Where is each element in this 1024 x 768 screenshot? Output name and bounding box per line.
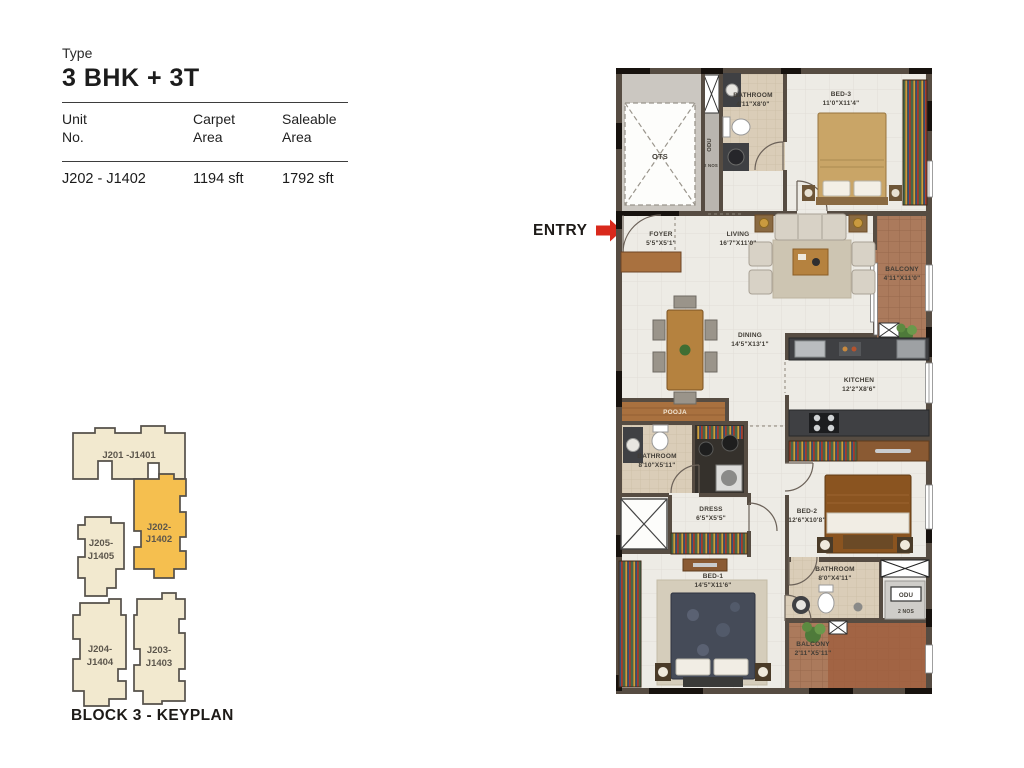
saleable-area-value: 1792 sft (282, 171, 348, 187)
room-label-bed2: BED-2 (797, 508, 818, 515)
floorplan-brochure-page: Type 3 BHK + 3T Unit No. Carpet Area Sal… (0, 0, 1024, 768)
room-label-bathroom-bed2: BATHROOM (815, 566, 854, 573)
room-label-bed3: BED-3 (831, 91, 852, 98)
room-dims-dining: 14'5"X13'1" (731, 341, 768, 348)
keyplan-label-j203-l1: J203- (147, 645, 171, 656)
room-dims-balcony-bed1: 2'11"X5'11" (795, 650, 832, 657)
room-dims-bathroom-top: 4'11"X8'0" (736, 101, 769, 108)
entry-marker: ENTRY (533, 219, 623, 242)
unit-type-value: 3 BHK + 3T (62, 64, 348, 93)
entry-label: ENTRY (533, 222, 587, 240)
keyplan-label-j204-l1: J204- (88, 644, 112, 655)
col-unit-line1: Unit (62, 110, 193, 128)
room-label-balcony-living: BALCONY (885, 266, 919, 273)
room-dims-living: 16'7"X11'0" (719, 240, 756, 247)
bookshelf-bed1 (619, 561, 641, 687)
col-saleable-line1: Saleable (282, 110, 348, 128)
room-label-bathroom-mid: BATHROOM (637, 453, 676, 460)
room-dims-foyer: 5'5"X5'1" (646, 240, 676, 247)
table-data-row: J202 - J1402 1194 sft 1792 sft (62, 162, 348, 187)
keyplan-label-j201: J201 -J1401 (102, 450, 156, 461)
hob-icon (809, 413, 839, 433)
room-label-living: LIVING (727, 231, 750, 238)
block-keyplan: J201 -J1401 J202- J1402 J205- J1405 J204… (55, 420, 235, 712)
unit-info-panel: Type 3 BHK + 3T Unit No. Carpet Area Sal… (62, 45, 348, 187)
armchair-icon (852, 242, 875, 266)
type-label: Type (62, 45, 348, 61)
keyplan-label-j204-l2: J1404 (87, 657, 114, 668)
keyplan-label-j203-l2: J1403 (146, 658, 172, 669)
coffee-table-icon (793, 249, 828, 275)
room-label-dining: DINING (738, 332, 762, 339)
shaft-x-box (621, 499, 667, 549)
keyplan-label-j202-l2: J1402 (146, 534, 172, 545)
wardrobe-dress (671, 533, 747, 554)
col-carpet-line1: Carpet (193, 110, 282, 128)
room-label-pooja: POOJA (663, 409, 687, 416)
room-dims-bed2: 12'6"X10'8" (788, 517, 825, 524)
sink-icon (795, 341, 825, 357)
room-label-dress: DRESS (699, 506, 723, 513)
keyplan-label-j205-l1: J205- (89, 538, 113, 549)
col-carpet-line2: Area (193, 128, 282, 146)
wardrobe-bed3 (903, 80, 927, 205)
room-label-balcony-bed1: BALCONY (796, 641, 830, 648)
room-label-foyer: FOYER (649, 231, 672, 238)
col-saleable-area: Saleable Area (282, 110, 348, 146)
keyplan-label-j205-l2: J1405 (88, 551, 115, 562)
room-label-bed1: BED-1 (703, 573, 724, 580)
bed2-furniture (817, 475, 913, 553)
room-label-bathroom-top: BATHROOM (733, 92, 772, 99)
room-dims-kitchen: 12'2"X8'6" (842, 386, 876, 393)
odu-top-shaft (704, 75, 719, 113)
keyplan-label-j202-l1: J202- (147, 522, 171, 533)
keyplan-caption: BLOCK 3 - KEYPLAN (71, 707, 234, 725)
room-dims-bed3: 11'0"X11'4" (823, 100, 860, 107)
room-dims-bathroom-mid: 8'10"X5'11" (638, 462, 675, 469)
room-dims-dress: 6'5"X5'5" (696, 515, 726, 522)
room-label-odu-bottom: ODU (899, 592, 914, 599)
table-header-row: Unit No. Carpet Area Saleable Area (62, 103, 348, 152)
room-label-odu-bottom-qty: 2 NOS (898, 609, 914, 615)
foyer-console (621, 252, 681, 272)
wardrobe-bed2 (789, 441, 857, 461)
room-dims-bathroom-bed2: 8'0"X4'11" (818, 575, 851, 582)
sofa-icon (775, 214, 846, 240)
armchair-icon (749, 270, 772, 294)
living-furniture (749, 214, 875, 298)
room-label-odu-top-qty: 2 NOS (704, 163, 718, 168)
carpet-area-value: 1194 sft (193, 171, 282, 187)
room-dims-balcony-living: 4'11"X11'0" (884, 275, 921, 282)
col-unit-no: Unit No. (62, 110, 193, 146)
col-unit-line2: No. (62, 128, 193, 146)
unit-no-value: J202 - J1402 (62, 171, 193, 187)
room-label-kitchen: KITCHEN (844, 377, 874, 384)
floor-plan: OTS ODU 2 NOS BATHROOM 4'11"X8'0" BED-3 … (613, 65, 935, 697)
room-dims-bed1: 14'5"X11'6" (694, 582, 731, 589)
room-label-odu-top: ODU (707, 138, 713, 151)
col-saleable-line2: Area (282, 128, 348, 146)
fridge-icon (897, 340, 925, 358)
armchair-icon (852, 270, 875, 294)
col-carpet-area: Carpet Area (193, 110, 282, 146)
room-label-ots: OTS (652, 152, 668, 161)
